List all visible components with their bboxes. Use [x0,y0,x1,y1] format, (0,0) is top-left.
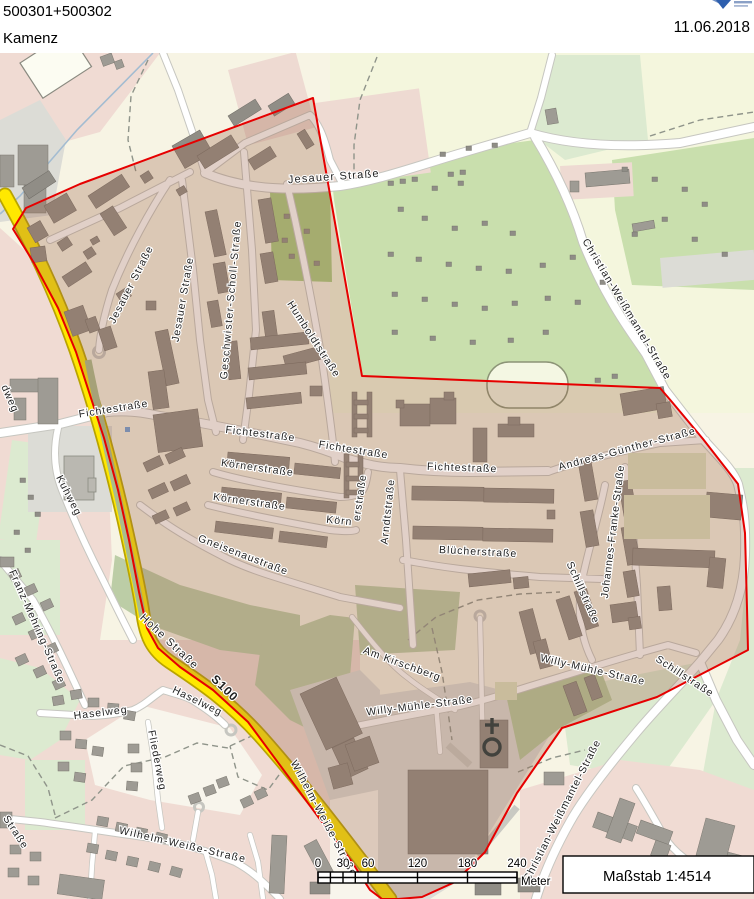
shed [508,338,514,343]
print-date: 11.06.2018 [674,19,750,37]
shed [466,146,472,151]
shed [595,378,601,383]
building [8,868,19,877]
shed [422,216,428,221]
shed [416,257,422,262]
shed [510,231,516,236]
building [28,876,39,885]
shed [28,495,34,500]
scale-tick-label: 60 [362,858,375,870]
building [269,835,287,894]
shed [545,296,551,301]
building [545,108,558,125]
scale-tick-label: 240 [507,858,526,870]
shed [692,237,698,242]
scale-ratio-text: Maßstab 1:4514 [603,868,711,885]
shed [412,177,418,182]
building [75,739,87,749]
agency-logo-icon [654,0,754,11]
scale-tick-label: 0 [315,858,321,870]
shed [392,330,398,335]
parcel-code: 500301+500302 [3,3,112,20]
shed [540,263,546,268]
building [38,378,58,424]
shed [682,187,688,192]
building [0,557,14,567]
shed [452,302,458,307]
scale-tick-label: 30 [337,858,350,870]
building [105,850,118,861]
sheet-header: 500301+500302 Kamenz 11.06.2018 [0,0,754,53]
shed [446,262,452,267]
shed [722,252,728,257]
shed [652,177,658,182]
building [131,763,142,772]
shed [460,170,466,175]
scale-tick-label: 180 [458,858,477,870]
shed [422,297,428,302]
shed [622,167,628,172]
building [86,843,98,854]
building [52,695,64,706]
map-viewport[interactable]: Jesauer StraßeJesauer StraßeJesauer Stra… [0,53,754,899]
shed [400,179,406,184]
map-sheet: 500301+500302 Kamenz 11.06.2018 [0,0,754,899]
shed [482,221,488,226]
building [570,181,579,192]
street-label: Fichtestraße [427,461,498,475]
building [126,781,138,791]
shed [612,374,618,379]
building [60,731,71,740]
shed [575,300,581,305]
scale-tick-label: 120 [408,858,427,870]
shed [440,152,446,157]
city-map[interactable]: Jesauer StraßeJesauer StraßeJesauer Stra… [0,53,754,899]
shed [432,186,438,191]
shed [543,330,549,335]
building [58,762,69,771]
shed [452,226,458,231]
shed [448,172,454,177]
shed [632,232,638,237]
shed [398,207,404,212]
building [126,856,139,867]
shed [482,306,488,311]
building [70,689,82,700]
building [30,852,41,861]
shed [470,340,476,345]
shed [570,255,576,260]
building [475,882,501,895]
shed [492,143,498,148]
building [74,772,86,782]
building [310,882,330,894]
shed [388,181,394,186]
shed [506,269,512,274]
shed [702,202,708,207]
building [88,698,99,707]
building [128,744,139,753]
city-name: Kamenz [3,30,58,47]
shed [388,252,394,257]
scale-ratio-box: Maßstab 1:4514 [563,856,754,893]
shed [14,530,20,535]
shed [512,301,518,306]
shed [35,512,41,517]
shed [20,478,26,483]
shed [458,181,464,186]
shed [392,292,398,297]
building [96,816,108,827]
building [92,746,104,756]
shed [662,217,668,222]
shed [430,336,436,341]
building [0,155,14,187]
shed [25,548,31,553]
shed [476,266,482,271]
building [544,772,564,785]
scale-unit: Meter [521,876,551,888]
